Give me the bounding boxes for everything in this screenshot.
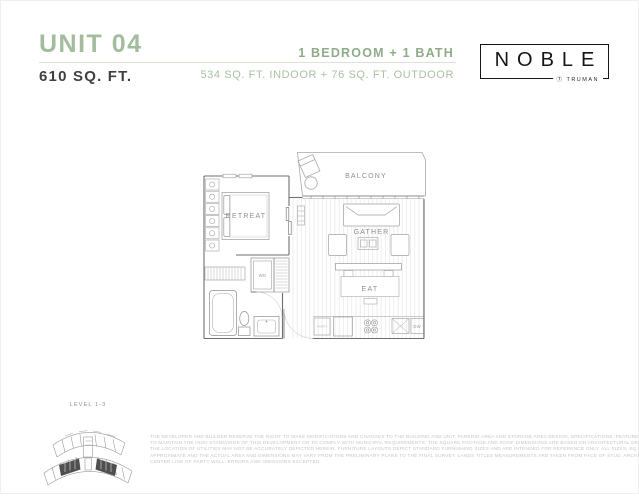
unit-title: UNIT 04	[39, 30, 143, 59]
retreat-label: RETREAT	[226, 213, 267, 220]
total-area: 610 SQ. FT.	[39, 68, 132, 85]
disclaimer-line: THE LOCATION OF UTILITIES MAY NOT BE ACC…	[150, 446, 632, 452]
eat-label: EAT	[362, 286, 379, 293]
sofa	[344, 204, 400, 226]
balcony-label: BALCONY	[345, 173, 387, 180]
window-wall	[303, 196, 425, 199]
pantry-label: PANTRY	[317, 326, 327, 329]
disclaimer: THE DEVELOPER AND BUILDER RESERVE THE RI…	[150, 434, 632, 465]
noble-logo: NOBLE Ⓣ TRUMAN	[480, 44, 609, 79]
disclaimer-line: CENTER LINE OF PARTY WALL. ERRORS AND OM…	[150, 459, 632, 465]
balcony-table	[305, 177, 317, 189]
storage-bench	[205, 267, 245, 280]
key-plan-drawing: LEVEL 1-3	[31, 395, 143, 491]
key-plan: LEVEL 1-3	[31, 395, 143, 491]
floorplan-sheet: UNIT 04 610 SQ. FT. 1 BEDROOM + 1 BATH 5…	[0, 0, 639, 494]
dishwasher-label: DW	[413, 324, 421, 329]
bathtub	[210, 291, 237, 336]
gather-label: GATHER	[354, 229, 390, 236]
retreat-closet	[206, 179, 220, 251]
key-plan-label: LEVEL 1-3	[70, 402, 107, 408]
bathroom-sink	[254, 317, 279, 337]
area-breakdown: 534 SQ. FT. INDOOR + 76 SQ. FT. OUTDOOR	[200, 69, 454, 81]
floor-plan-drawing: BALCONY	[186, 149, 436, 359]
bathroom-door-arc	[257, 292, 283, 318]
noble-logo-wordmark: NOBLE	[487, 49, 603, 72]
wardrobe	[274, 258, 289, 292]
balcony-lounge-chair	[298, 155, 320, 178]
floor-plan: BALCONY	[186, 149, 436, 359]
washer-dryer-label: WD	[259, 273, 267, 278]
toilet	[239, 312, 251, 336]
truman-byline: Ⓣ TRUMAN	[553, 75, 603, 83]
bed-bath-config: 1 BEDROOM + 1 BATH	[298, 46, 454, 60]
building-outline	[44, 431, 132, 485]
header-divider	[39, 62, 456, 63]
disclaimer-line: APPROXIMATE AND THE ACTUAL AREA AND DIME…	[150, 453, 632, 459]
